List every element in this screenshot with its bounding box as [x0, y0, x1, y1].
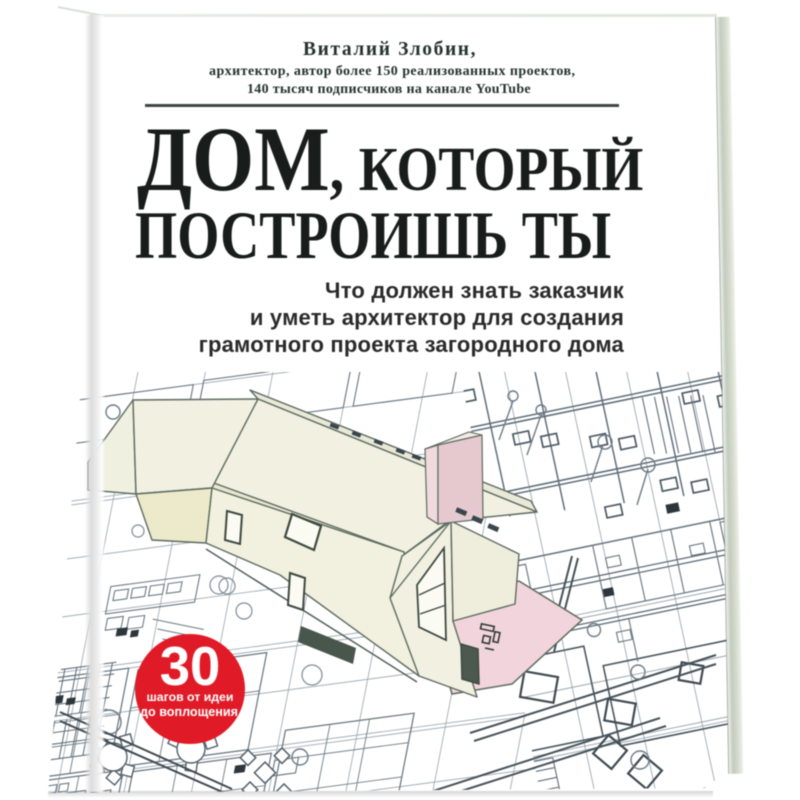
- svg-text:30: 30: [160, 636, 221, 697]
- svg-text:шагов от идеи: шагов от идеи: [147, 690, 234, 704]
- svg-text:до воплощения: до воплощения: [140, 705, 238, 719]
